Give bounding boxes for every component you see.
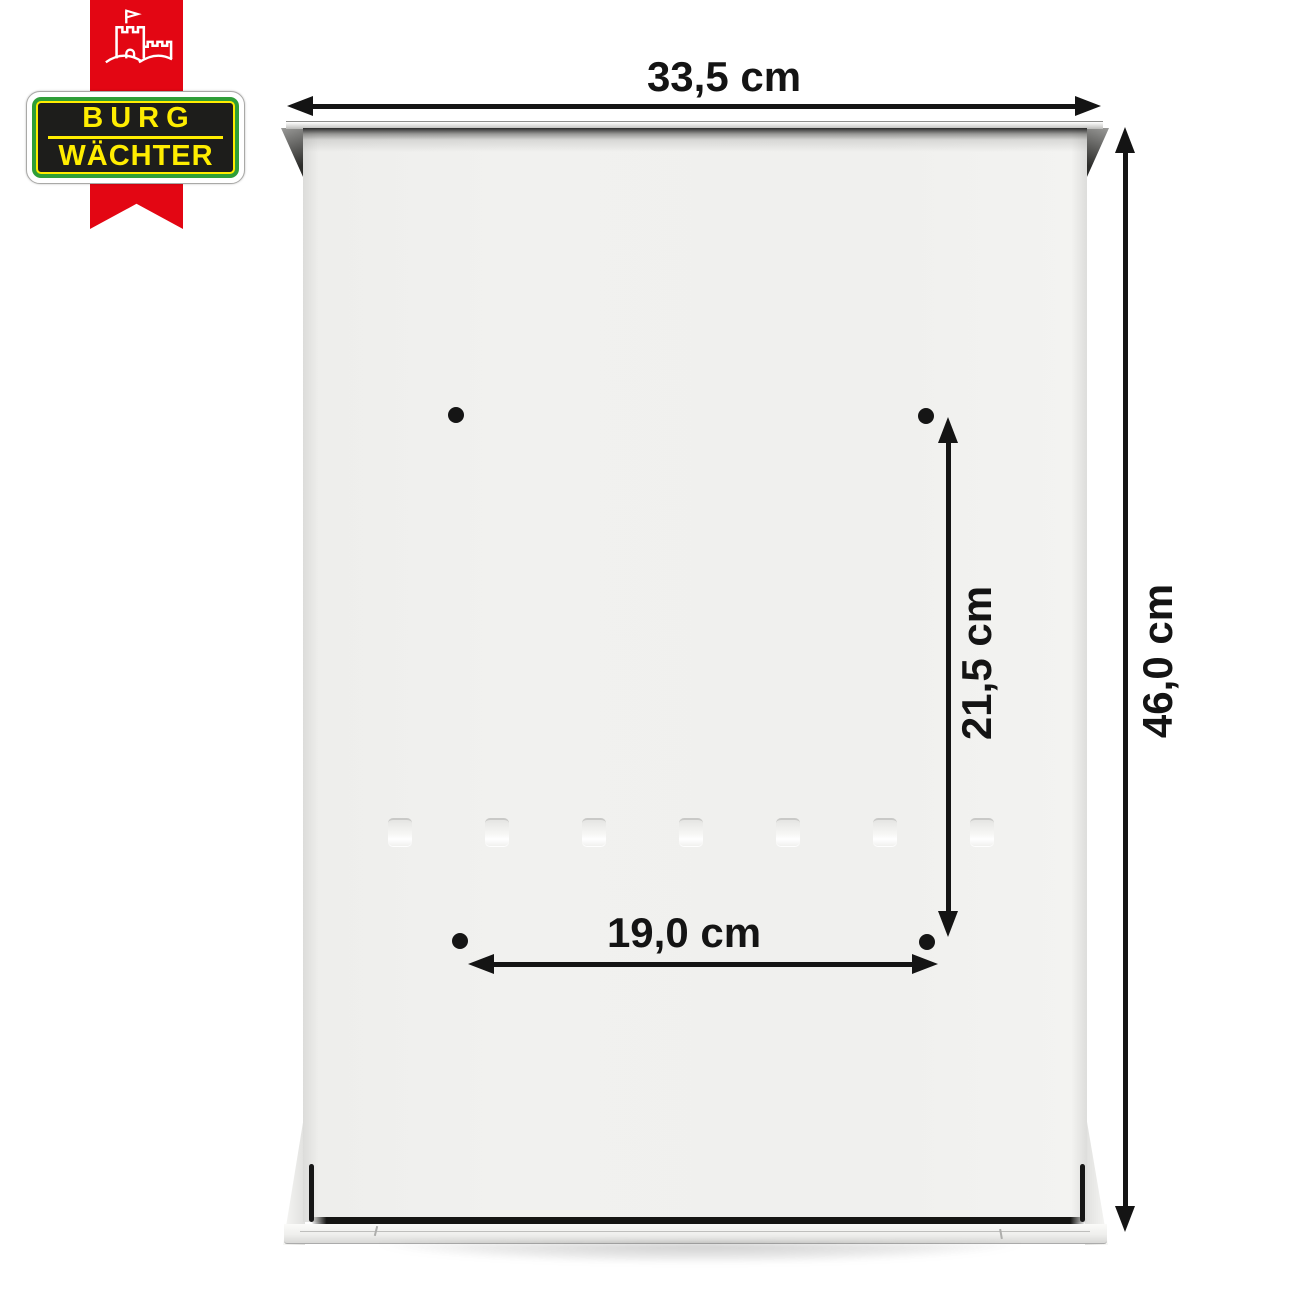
vent-slot [679, 818, 703, 846]
brand-badge: BURG WÄCHTER [26, 91, 245, 184]
arrowhead-up-icon [1115, 127, 1135, 153]
height-dimension-arrow [1115, 127, 1136, 1232]
arrowhead-right-icon [1075, 96, 1101, 116]
vent-slot [485, 818, 509, 846]
vent-slot [582, 818, 606, 846]
width-dimension-label: 33,5 cm [647, 53, 801, 101]
drop-shadow [292, 1243, 1108, 1269]
arrowhead-left-icon [287, 96, 313, 116]
arrowhead-right-icon [912, 954, 938, 974]
mounting-hole-top-left [448, 407, 464, 423]
badge-divider [48, 136, 224, 139]
brand-name-line2: WÄCHTER [57, 142, 213, 171]
mounting-hole-bottom-right [919, 934, 935, 950]
badge-core: BURG WÄCHTER [36, 101, 235, 174]
hole-spacing-vertical-label: 21,5 cm [953, 586, 1001, 740]
dimension-line [946, 437, 951, 917]
arrowhead-up-icon [938, 417, 958, 443]
dimension-line [1123, 147, 1128, 1212]
product-dimension-diagram: BURG WÄCHTER 33,5 cm 46,0 c [0, 0, 1300, 1300]
vent-slot [388, 818, 412, 846]
vent-slot [776, 818, 800, 846]
vent-slot [873, 818, 897, 846]
mounting-hole-bottom-left [452, 933, 468, 949]
arrowhead-down-icon [938, 911, 958, 937]
castle-flag-icon [100, 6, 174, 68]
mailbox-bottom-fold-left [309, 1164, 314, 1222]
mailbox-bottom-shadow-line [311, 1217, 1086, 1224]
arrowhead-left-icon [468, 954, 494, 974]
mailbox-bottom-flange [284, 1224, 1107, 1244]
hole-spacing-horizontal-arrow [468, 954, 938, 975]
arrowhead-down-icon [1115, 1206, 1135, 1232]
flange-seam-line [300, 1231, 1090, 1232]
mounting-hole-top-right [918, 408, 934, 424]
mailbox-bottom-fold-right [1080, 1164, 1085, 1222]
dimension-line [307, 104, 1081, 109]
dimension-line [488, 962, 918, 967]
brand-name-line1: BURG [75, 104, 195, 133]
hole-spacing-horizontal-label: 19,0 cm [607, 909, 761, 957]
badge-green-ring: BURG WÄCHTER [32, 97, 239, 178]
vent-slot [970, 818, 994, 846]
height-dimension-label: 46,0 cm [1134, 584, 1182, 738]
